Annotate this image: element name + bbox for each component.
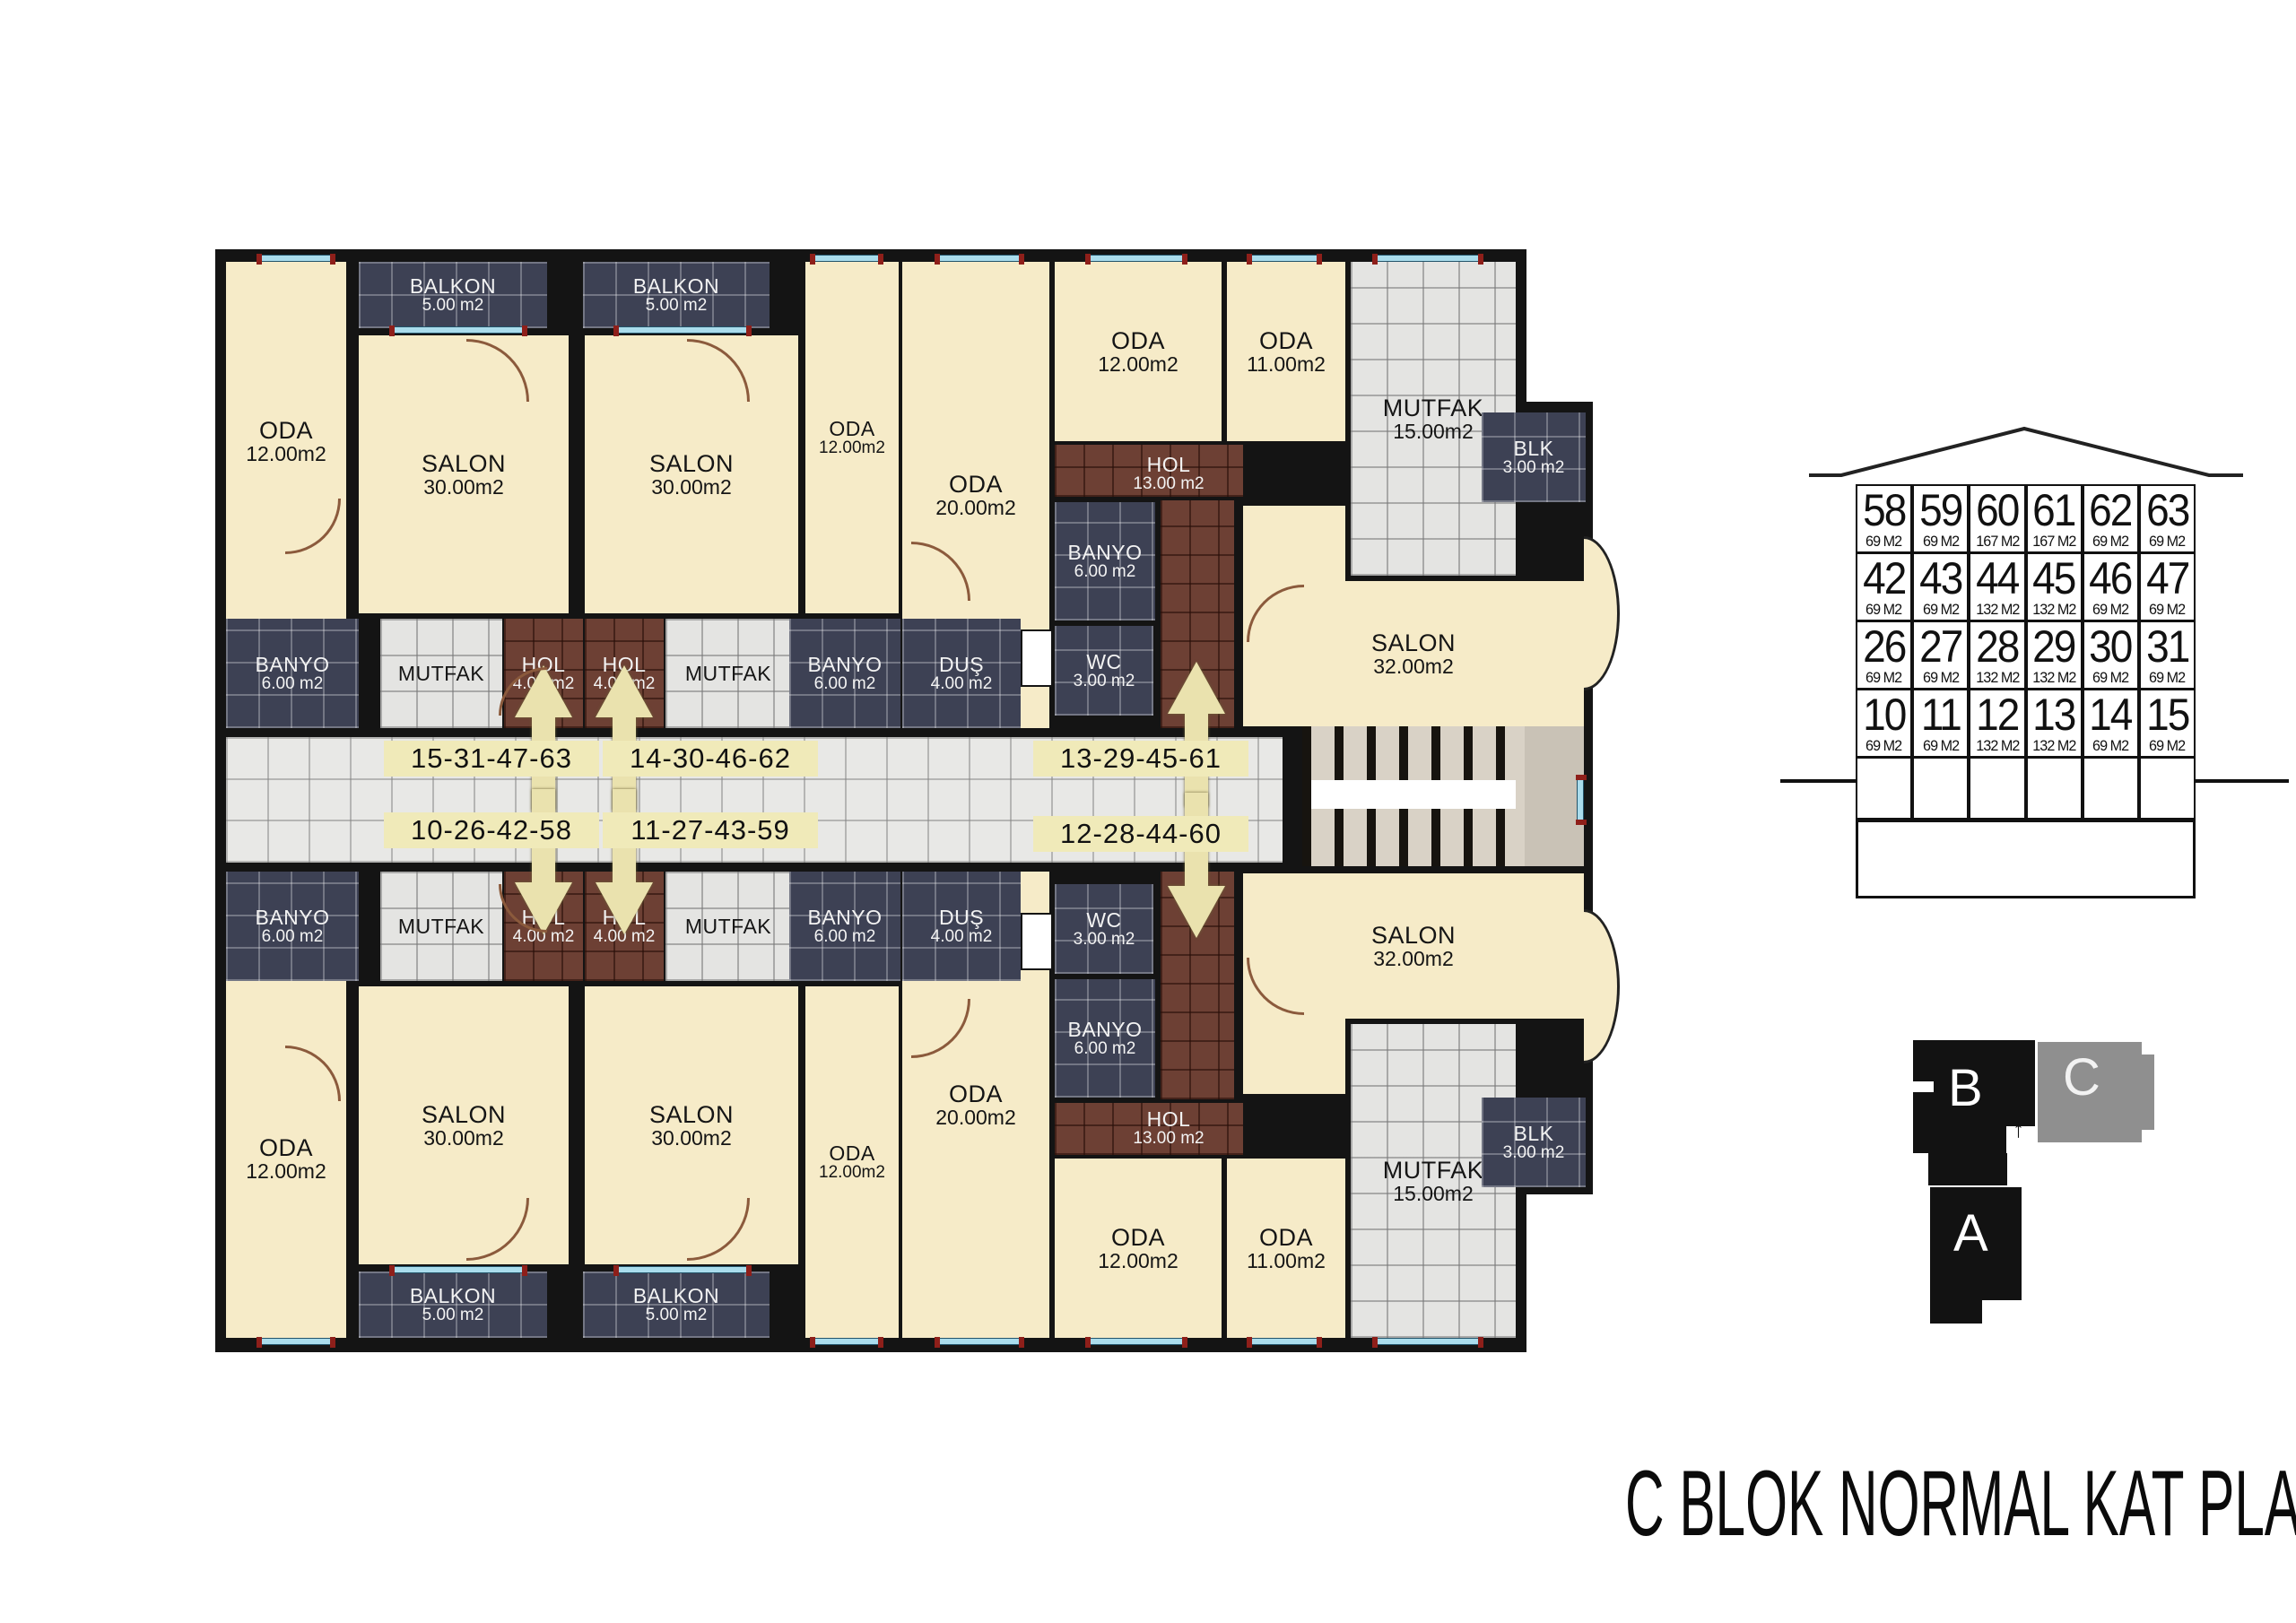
room-area-label: 6.00 m2: [1074, 1040, 1136, 1058]
unit-number: 45: [2032, 556, 2074, 601]
room-oda12: ODA12.00m2: [805, 986, 899, 1338]
site-block-a-shape2: [1930, 1280, 1982, 1324]
unit-area: 132 M2: [2032, 737, 2075, 755]
unit-area: 69 M2: [2092, 669, 2128, 687]
room-oda12: ODA12.00m2: [226, 979, 346, 1338]
page-title: C BLOK NORMAL KAT PLANI: [1625, 1451, 2296, 1558]
unit-number: 47: [2146, 556, 2188, 601]
unit-area: 69 M2: [2092, 533, 2128, 551]
unit-area: 69 M2: [1923, 737, 1959, 755]
room-balkon: BALKON5.00 m2: [359, 1271, 547, 1338]
unit-numbers-bottom-right: 12-28-44-60: [1033, 816, 1248, 852]
room-area-label: 3.00 m2: [1503, 1144, 1565, 1162]
schematic-unit-cell: 4669 M2: [2083, 552, 2139, 621]
room-area-label: 5.00 m2: [422, 297, 484, 315]
room-name-label: BLK: [1514, 1123, 1554, 1144]
room-balkon: BALKON5.00 m2: [583, 1271, 770, 1338]
room-blk: BLK3.00 m2: [1482, 412, 1586, 502]
room-area-label: 13.00 m2: [1133, 475, 1204, 493]
entry-arrow-down-icon: [596, 789, 653, 934]
room-name-label: SALON: [422, 1102, 506, 1127]
room-area-label: 12.00m2: [819, 1164, 885, 1182]
room-name-label: DUŞ: [939, 654, 984, 675]
schematic-empty-cell: [1969, 757, 2025, 820]
window: [391, 1266, 526, 1273]
room-area-label: 6.00 m2: [814, 928, 876, 946]
room-area-label: 20.00m2: [935, 497, 1016, 518]
room-area-label: 30.00m2: [423, 476, 504, 498]
room-area-label: 30.00m2: [651, 1127, 732, 1149]
schematic-unit-cell: 3069 M2: [2083, 621, 2139, 690]
window: [391, 326, 526, 334]
room-name-label: BALKON: [410, 1285, 496, 1306]
room-name-label: ODA: [259, 1135, 313, 1160]
unit-area: 69 M2: [1923, 533, 1959, 551]
room-area-label: 13.00 m2: [1133, 1130, 1204, 1148]
room-banyo: BANYO6.00 m2: [226, 619, 359, 728]
unit-number: 63: [2146, 488, 2188, 533]
unit-number: 11: [1921, 692, 1961, 737]
unit-area: 132 M2: [1976, 669, 2019, 687]
unit-number: 58: [1863, 488, 1905, 533]
room-wc: WC3.00 m2: [1055, 884, 1153, 974]
room-area-label: 12.00m2: [1098, 353, 1178, 375]
unit-number: 43: [1919, 556, 1961, 601]
room-name-label: SALON: [649, 1102, 734, 1127]
schematic-floor-row: 5869 M25969 M260167 M261167 M26269 M2636…: [1856, 484, 2196, 552]
window: [812, 1338, 882, 1345]
room-name-label: ODA: [259, 418, 313, 443]
room-area-label: 4.00 m2: [931, 928, 993, 946]
window: [1374, 255, 1482, 262]
room-banyo: BANYO6.00 m2: [789, 872, 900, 981]
schematic-floor-row: 4269 M24369 M244132 M245132 M24669 M2476…: [1856, 552, 2196, 621]
unit-number: 26: [1863, 624, 1905, 669]
unit-area: 132 M2: [1976, 601, 2019, 619]
unit-area: 132 M2: [1976, 737, 2019, 755]
room-name-label: BANYO: [1067, 1019, 1142, 1040]
schematic-unit-cell: 61167 M2: [2026, 484, 2083, 553]
room-oda11: ODA11.00m2: [1227, 262, 1345, 441]
room-name-label: WC: [1086, 909, 1121, 931]
room-dus: DUŞ4.00 m2: [902, 872, 1021, 981]
unit-number: 44: [1976, 556, 2018, 601]
unit-number: 15: [2146, 692, 2188, 737]
schematic-unit-cell: 4769 M2: [2139, 552, 2196, 621]
room-area: [1243, 506, 1345, 581]
floor-plan-sheet: ODA12.00m2ODA12.00m2BALKON5.00 m2BALKON5…: [0, 0, 2296, 1623]
room-area-label: 3.00 m2: [1503, 459, 1565, 477]
room-name-label: ODA: [829, 1142, 874, 1164]
window: [1087, 1338, 1186, 1345]
bay-window-bottom: [1584, 909, 1620, 1063]
unit-number: 27: [1919, 624, 1961, 669]
room-area-label: 6.00 m2: [814, 675, 876, 693]
window: [1248, 1338, 1320, 1345]
room-oda12: ODA12.00m2: [1055, 1159, 1222, 1338]
room-blk: BLK3.00 m2: [1482, 1098, 1586, 1187]
window: [1248, 255, 1320, 262]
room-name-label: ODA: [1259, 1225, 1313, 1250]
window: [258, 1338, 334, 1345]
unit-area: 132 M2: [2032, 669, 2075, 687]
schematic-unit-cell: 2769 M2: [1912, 621, 1969, 690]
site-block-a-label: A: [1953, 1203, 1988, 1263]
schematic-empty-cell: [1856, 757, 1912, 820]
room-area: [1243, 1019, 1345, 1094]
unit-area: 69 M2: [2149, 737, 2185, 755]
unit-numbers-top-left: 15-31-47-63: [384, 741, 599, 777]
room-name-label: ODA: [1259, 328, 1313, 353]
room-area-label: 32.00m2: [1373, 655, 1454, 677]
entry-arrow-down-icon: [1168, 793, 1225, 938]
unit-number: 29: [2032, 624, 2074, 669]
schematic-basement: [1856, 820, 2196, 898]
room-area-label: 5.00 m2: [422, 1306, 484, 1324]
room-name-label: BANYO: [807, 654, 882, 675]
room-area-label: 3.00 m2: [1074, 673, 1135, 690]
room-banyo: BANYO6.00 m2: [1055, 502, 1155, 621]
room-name-label: ODA: [1111, 1225, 1165, 1250]
schematic-unit-cell: 45132 M2: [2026, 552, 2083, 621]
unit-area: 132 M2: [2032, 601, 2075, 619]
site-block-b-label: B: [1948, 1058, 1983, 1118]
room-banyo: BANYO6.00 m2: [226, 872, 359, 981]
site-block-a-shape3: [1982, 1280, 2022, 1300]
schematic-unit-cell: 60167 M2: [1969, 484, 2025, 553]
room-name-label: MUTFAK: [685, 663, 771, 684]
schematic-unit-cell: 1069 M2: [1856, 689, 1912, 758]
room-area-label: 12.00m2: [1098, 1250, 1178, 1271]
stair-landing: [1525, 723, 1584, 866]
schematic-roof: [1807, 414, 2247, 490]
room-area-label: 6.00 m2: [262, 675, 324, 693]
room-name-label: MUTFAK: [398, 663, 484, 684]
unit-area: 69 M2: [1866, 669, 1902, 687]
window: [936, 1338, 1022, 1345]
room-name-label: HOL: [1147, 454, 1191, 475]
room-area-label: 5.00 m2: [646, 1306, 708, 1324]
schematic-unit-cell: 1469 M2: [2083, 689, 2139, 758]
window: [812, 255, 882, 262]
schematic-unit-cell: 1169 M2: [1912, 689, 1969, 758]
unit-numbers-top-mid: 14-30-46-62: [603, 741, 818, 777]
room-area-label: 6.00 m2: [1074, 563, 1136, 581]
unit-area: 69 M2: [2149, 601, 2185, 619]
room-name-label: SALON: [1371, 630, 1456, 655]
schematic-empty-cell: [2083, 757, 2139, 820]
room-oda12: ODA12.00m2: [805, 262, 899, 613]
unit-number: 30: [2089, 624, 2131, 669]
unit-area: 167 M2: [2032, 533, 2075, 551]
unit-number: 62: [2089, 488, 2131, 533]
schematic-unit-cell: 4369 M2: [1912, 552, 1969, 621]
room-area-label: 12.00m2: [246, 1160, 326, 1182]
room-area: [1021, 913, 1053, 970]
room-dus: DUŞ4.00 m2: [902, 619, 1021, 728]
ground-line-right: [2194, 779, 2289, 783]
room-name-label: BALKON: [410, 275, 496, 297]
unit-area: 69 M2: [1866, 533, 1902, 551]
room-mutfak: MUTFAK: [380, 872, 502, 981]
unit-number: 14: [2089, 692, 2131, 737]
unit-number: 61: [2032, 488, 2074, 533]
unit-area: 69 M2: [2149, 669, 2185, 687]
unit-number: 12: [1976, 692, 2018, 737]
room-mutfak: MUTFAK: [665, 619, 791, 728]
unit-number: 28: [1976, 624, 2018, 669]
room-name-label: SALON: [1371, 923, 1456, 948]
schematic-unit-cell: 5869 M2: [1856, 484, 1912, 553]
unit-area: 69 M2: [2092, 737, 2128, 755]
room-area-label: 12.00m2: [819, 439, 885, 457]
unit-number: 46: [2089, 556, 2131, 601]
schematic-unit-cell: 2669 M2: [1856, 621, 1912, 690]
room-name-label: HOL: [1147, 1108, 1191, 1130]
schematic-unit-cell: 1569 M2: [2139, 689, 2196, 758]
room-area-label: 15.00m2: [1393, 1183, 1474, 1204]
room-name-label: MUTFAK: [398, 916, 484, 937]
unit-area: 69 M2: [2149, 533, 2185, 551]
unit-area: 69 M2: [1923, 669, 1959, 687]
site-block-b-shape2: [2006, 1040, 2035, 1126]
unit-numbers-top-right: 13-29-45-61: [1033, 741, 1248, 777]
room-salon30: SALON30.00m2: [359, 986, 569, 1264]
window: [1087, 255, 1186, 262]
schematic-unit-cell: 12132 M2: [1969, 689, 2025, 758]
room-name-label: MUTFAK: [1383, 1158, 1484, 1183]
room-area-label: 3.00 m2: [1074, 931, 1135, 949]
room-mutfak: MUTFAK: [665, 872, 791, 981]
unit-number: 13: [2032, 692, 2074, 737]
schematic-empty-cell: [2139, 757, 2196, 820]
unit-number: 59: [1919, 488, 1961, 533]
room-area-label: 15.00m2: [1393, 421, 1474, 442]
schematic-unit-cell: 13132 M2: [2026, 689, 2083, 758]
room-oda11: ODA11.00m2: [1227, 1159, 1345, 1338]
schematic-unit-cell: 28132 M2: [1969, 621, 2025, 690]
room-area-label: 11.00m2: [1247, 353, 1326, 375]
unit-number: 10: [1863, 692, 1905, 737]
schematic-unit-cell: 44132 M2: [1969, 552, 2025, 621]
room-name-label: BALKON: [633, 1285, 719, 1306]
room-area-label: 5.00 m2: [646, 297, 708, 315]
site-block-b-shape3: [1928, 1153, 2007, 1185]
room-area-label: 4.00 m2: [931, 675, 993, 693]
window: [1577, 777, 1584, 823]
room-mutfak: MUTFAK: [380, 619, 502, 728]
room-salon30: SALON30.00m2: [359, 335, 569, 613]
unit-area: 69 M2: [1866, 601, 1902, 619]
entry-arrow-up-icon: [1168, 662, 1225, 807]
window: [1374, 1338, 1482, 1345]
site-block-c-tab: [2142, 1055, 2154, 1130]
staircase-divider: [1311, 780, 1516, 809]
unit-number: 42: [1863, 556, 1905, 601]
room-balkon: BALKON5.00 m2: [583, 262, 770, 328]
schematic-unit-cell: 5969 M2: [1912, 484, 1969, 553]
room-hol13: HOL13.00 m2: [1092, 448, 1245, 499]
schematic-empty-cell: [2026, 757, 2083, 820]
schematic-floor-row: 2669 M22769 M228132 M229132 M23069 M2316…: [1856, 621, 2196, 689]
room-area-label: 11.00m2: [1247, 1250, 1326, 1271]
room-balkon: BALKON5.00 m2: [359, 262, 547, 328]
unit-number: 31: [2146, 624, 2188, 669]
window: [936, 255, 1022, 262]
schematic-floor-row: 1069 M21169 M212132 M213132 M21469 M2156…: [1856, 689, 2196, 757]
unit-area: 69 M2: [1866, 737, 1902, 755]
room-area: [1021, 629, 1053, 687]
unit-area: 167 M2: [1976, 533, 2019, 551]
room-name-label: ODA: [829, 418, 874, 439]
schematic-unit-cell: 4269 M2: [1856, 552, 1912, 621]
room-name-label: MUTFAK: [685, 916, 771, 937]
window: [258, 255, 334, 262]
schematic-ground-floor-row: [1856, 757, 2196, 820]
room-banyo: BANYO6.00 m2: [789, 619, 900, 728]
room-oda12: ODA12.00m2: [1055, 262, 1222, 441]
schematic-unit-cell: 3169 M2: [2139, 621, 2196, 690]
ground-line-left: [1780, 779, 1856, 783]
room-area-label: 30.00m2: [423, 1127, 504, 1149]
unit-area: 69 M2: [1923, 601, 1959, 619]
room-name-label: BANYO: [255, 907, 329, 928]
room-name-label: DUŞ: [939, 907, 984, 928]
room-name-label: SALON: [422, 451, 506, 476]
room-wc: WC3.00 m2: [1055, 626, 1153, 716]
room-name-label: WC: [1086, 651, 1121, 673]
room-name-label: BANYO: [807, 907, 882, 928]
room-area-label: 12.00m2: [246, 443, 326, 464]
schematic-unit-cell: 6269 M2: [2083, 484, 2139, 553]
site-block-c-label: C: [2063, 1047, 2100, 1107]
bay-window-top: [1584, 536, 1620, 690]
room-area-label: 20.00m2: [935, 1107, 1016, 1128]
window: [615, 326, 750, 334]
room-name-label: MUTFAK: [1383, 395, 1484, 421]
room-name-label: ODA: [1111, 328, 1165, 353]
room-name-label: ODA: [949, 472, 1003, 497]
room-hol13: HOL13.00 m2: [1092, 1103, 1245, 1153]
schematic-empty-cell: [1912, 757, 1969, 820]
room-name-label: BLK: [1514, 438, 1554, 459]
unit-number: 60: [1976, 488, 2018, 533]
room-area-label: 32.00m2: [1373, 948, 1454, 969]
north-arrow-icon: ↑: [2013, 1115, 2024, 1143]
site-block-b-notch: [1907, 1081, 1934, 1092]
unit-numbers-bottom-left: 10-26-42-58: [384, 812, 599, 848]
room-name-label: BALKON: [633, 275, 719, 297]
room-oda12: ODA12.00m2: [226, 262, 346, 621]
room-name-label: BANYO: [1067, 542, 1142, 563]
unit-numbers-bottom-mid: 11-27-43-59: [603, 812, 818, 848]
room-name-label: SALON: [649, 451, 734, 476]
room-banyo: BANYO6.00 m2: [1055, 979, 1155, 1098]
schematic-unit-cell: 29132 M2: [2026, 621, 2083, 690]
room-area-label: 6.00 m2: [262, 928, 324, 946]
window: [615, 1266, 750, 1273]
schematic-unit-cell: 6369 M2: [2139, 484, 2196, 553]
room-name-label: BANYO: [255, 654, 329, 675]
unit-area: 69 M2: [2092, 601, 2128, 619]
room-area-label: 30.00m2: [651, 476, 732, 498]
room-name-label: ODA: [949, 1081, 1003, 1107]
